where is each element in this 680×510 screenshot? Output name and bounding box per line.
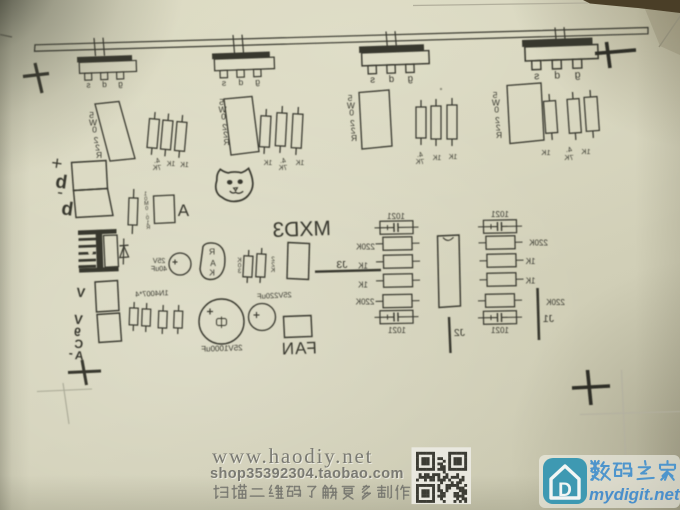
svg-text:mydigit.net: mydigit.net (589, 485, 680, 504)
svg-text:D: D (558, 480, 572, 501)
